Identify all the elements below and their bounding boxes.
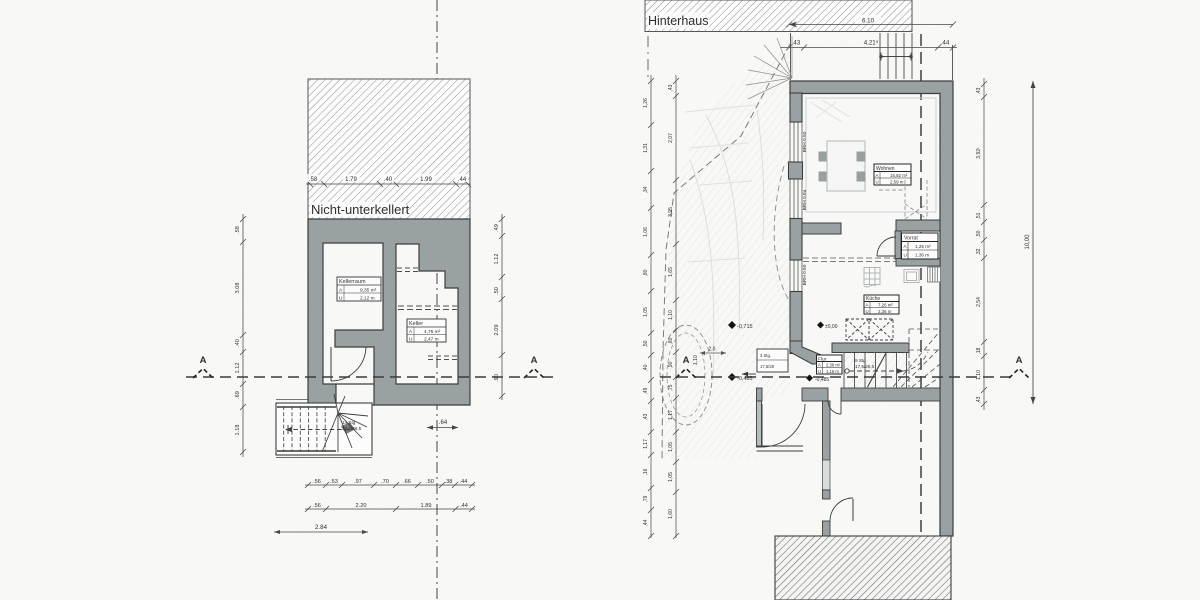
svg-text:1,65: 1,65	[668, 267, 674, 277]
svg-text:4,76 m²: 4,76 m²	[424, 329, 441, 335]
svg-text:.58: .58	[309, 177, 318, 183]
svg-text:.43: .43	[792, 40, 801, 47]
svg-text:,34: ,34	[643, 186, 649, 193]
svg-text:2,36 m: 2,36 m	[878, 309, 892, 314]
svg-text:-0,485: -0,485	[815, 377, 829, 383]
svg-text:.49: .49	[494, 224, 500, 232]
svg-text:,43: ,43	[976, 87, 982, 94]
svg-text:2.20: 2.20	[356, 503, 367, 509]
svg-text:1,36 m: 1,36 m	[915, 253, 929, 258]
svg-text:U: U	[876, 180, 879, 185]
svg-text:,50: ,50	[643, 340, 649, 347]
svg-text:3,92¹: 3,92¹	[976, 147, 982, 159]
svg-text:1,17: 1,17	[668, 410, 674, 420]
svg-text:-0,715: -0,715	[737, 324, 753, 330]
svg-text:,51: ,51	[976, 212, 982, 219]
svg-text:1.18: 1.18	[235, 425, 241, 436]
svg-text:17,5/26,5: 17,5/26,5	[342, 426, 362, 431]
svg-text:A: A	[1016, 355, 1023, 366]
svg-text:,43: ,43	[976, 396, 982, 403]
svg-text:6.10: 6.10	[862, 18, 875, 25]
svg-text:.53: .53	[330, 479, 338, 485]
svg-text:.44: .44	[458, 177, 467, 183]
svg-text:A: A	[818, 363, 821, 368]
svg-text:1.99: 1.99	[420, 177, 432, 183]
svg-text:.50: .50	[426, 479, 434, 485]
svg-text:.58: .58	[235, 226, 241, 234]
svg-text:1.12: 1.12	[494, 254, 500, 265]
svg-text:,32: ,32	[976, 248, 982, 255]
svg-text:,75: ,75	[668, 384, 674, 391]
svg-text:U: U	[409, 337, 413, 343]
svg-text:1,60: 1,60	[668, 509, 674, 519]
svg-text:1,10: 1,10	[668, 310, 674, 320]
svg-text:U: U	[339, 296, 343, 302]
svg-text:,80: ,80	[668, 337, 674, 344]
svg-text:A: A	[200, 355, 207, 366]
svg-text:,49: ,49	[643, 387, 649, 394]
svg-text:U: U	[904, 253, 907, 258]
svg-text:.69: .69	[235, 391, 241, 399]
svg-text:2,59 m: 2,59 m	[890, 180, 904, 185]
svg-text:9,35 m²: 9,35 m²	[360, 288, 377, 294]
svg-text:2,12 m: 2,12 m	[360, 296, 375, 302]
svg-text:.64: .64	[439, 420, 448, 426]
svg-text:,79: ,79	[643, 495, 649, 502]
svg-text:3 Stg.: 3 Stg.	[760, 353, 771, 358]
svg-text:Vorrat: Vorrat	[904, 236, 918, 242]
svg-text:.38: .38	[445, 479, 453, 485]
svg-text:7,26 m²: 7,26 m²	[878, 303, 893, 308]
svg-text:.44: .44	[941, 40, 950, 47]
svg-text:1,10: 1,10	[976, 370, 982, 380]
svg-text:,44: ,44	[643, 519, 649, 526]
svg-text:Wohnen: Wohnen	[876, 166, 895, 172]
svg-text:A: A	[866, 303, 869, 308]
svg-text:1,16 m: 1,16 m	[826, 369, 839, 374]
svg-text:Keller: Keller	[409, 321, 423, 327]
svg-text:9 Stg: 9 Stg	[855, 358, 866, 363]
svg-text:.44: .44	[460, 479, 468, 485]
svg-text:4.21⁵: 4.21⁵	[864, 40, 879, 47]
svg-text:2,0: 2,0	[709, 347, 716, 353]
svg-text:Nicht-unterkellert: Nicht-unterkellert	[311, 202, 410, 217]
svg-text:2,47 m: 2,47 m	[424, 337, 439, 343]
svg-text:.97: .97	[354, 479, 362, 485]
svg-text:2,07: 2,07	[668, 133, 674, 143]
svg-text:.56: .56	[313, 503, 321, 509]
svg-text:,40: ,40	[643, 364, 649, 371]
svg-text:.70: .70	[381, 479, 389, 485]
svg-text:1,26: 1,26	[643, 98, 649, 108]
svg-text:,16: ,16	[643, 468, 649, 475]
svg-text:1.12: 1.12	[235, 363, 241, 374]
svg-text:A: A	[531, 355, 538, 366]
svg-text:A: A	[683, 355, 690, 366]
svg-text:Kellerraum: Kellerraum	[339, 279, 366, 285]
svg-text:1,10: 1,10	[693, 355, 699, 365]
svg-text:1,05: 1,05	[643, 307, 649, 317]
svg-text:A: A	[876, 173, 879, 178]
svg-text:Flur: Flur	[818, 356, 827, 362]
svg-text:U: U	[818, 369, 821, 374]
svg-text:1,25 m²: 1,25 m²	[915, 244, 931, 249]
svg-text:3.08: 3.08	[235, 283, 241, 294]
svg-text:.90: .90	[494, 374, 500, 382]
svg-text:.40: .40	[384, 177, 393, 183]
svg-text:15,82 m²: 15,82 m²	[890, 173, 908, 178]
svg-text:1,06: 1,06	[643, 227, 649, 237]
svg-text:1,05: 1,05	[668, 472, 674, 482]
svg-text:.44: .44	[460, 503, 468, 509]
svg-text:1.79: 1.79	[345, 177, 357, 183]
svg-text:3,95: 3,95	[668, 207, 674, 217]
svg-text:2,54: 2,54	[976, 297, 982, 307]
svg-text:.40: .40	[235, 339, 241, 347]
svg-text:.50: .50	[494, 287, 500, 295]
svg-text:1,31: 1,31	[643, 143, 649, 153]
svg-text:,18: ,18	[976, 347, 982, 354]
svg-text:1,17: 1,17	[643, 439, 649, 449]
svg-text:2.84: 2.84	[315, 524, 328, 531]
svg-text:1,05: 1,05	[668, 442, 674, 452]
svg-text:BRH 0.50: BRH 0.50	[802, 131, 808, 152]
svg-text:BRH 0.8a: BRH 0.8a	[802, 189, 808, 210]
svg-text:Küche: Küche	[866, 296, 880, 302]
svg-text:.56: .56	[313, 479, 321, 485]
svg-text:±0,00: ±0,00	[825, 324, 838, 330]
svg-text:2,36 m²: 2,36 m²	[826, 363, 841, 368]
svg-text:,80: ,80	[643, 269, 649, 276]
svg-text:17,5/26,5: 17,5/26,5	[855, 364, 875, 369]
svg-text:BRH 0.90: BRH 0.90	[802, 264, 808, 285]
svg-text:14 Stg: 14 Stg	[342, 420, 356, 425]
svg-text:.66: .66	[403, 479, 411, 485]
svg-text:,43: ,43	[643, 413, 649, 420]
svg-text:,50: ,50	[976, 230, 982, 237]
svg-text:10,00: 10,00	[1025, 234, 1031, 250]
svg-text:,90: ,90	[668, 361, 674, 368]
svg-text:Hinterhaus: Hinterhaus	[648, 14, 708, 28]
svg-text:,43: ,43	[668, 84, 674, 91]
svg-text:U: U	[866, 309, 869, 314]
svg-text:2.09: 2.09	[494, 325, 500, 336]
svg-text:1.89: 1.89	[421, 503, 432, 509]
svg-text:17,5/28: 17,5/28	[760, 364, 775, 369]
